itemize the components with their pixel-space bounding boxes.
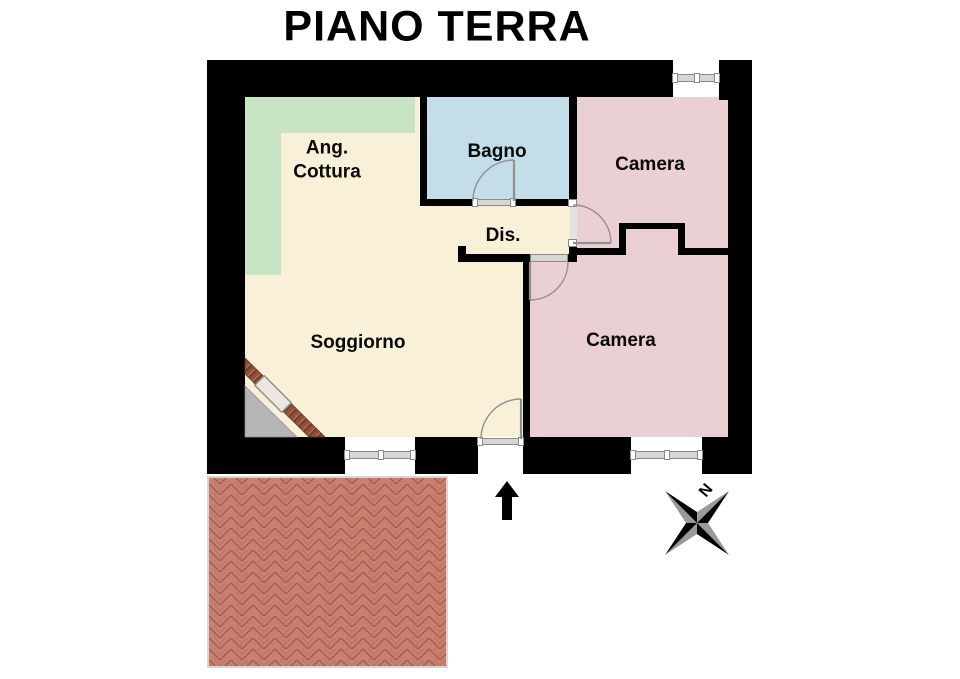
window-jamb bbox=[664, 450, 670, 460]
page-title: PIANO TERRA bbox=[283, 3, 590, 52]
wall-bagno-left bbox=[420, 97, 427, 206]
wall-dis-stub bbox=[458, 246, 466, 254]
compass-north-label: N bbox=[696, 481, 716, 501]
room-label-camera-sud: Camera bbox=[586, 329, 656, 353]
door-jamb bbox=[568, 239, 577, 247]
wall-camera-divider-a bbox=[576, 248, 619, 255]
threshold-entrance-door bbox=[478, 438, 523, 445]
floor-plan-page: PIANO TERRA bbox=[0, 0, 960, 679]
window-jamb bbox=[714, 73, 720, 83]
wall-bottom-c bbox=[523, 437, 631, 474]
door-jamb bbox=[510, 198, 516, 207]
wall-nook-top bbox=[619, 223, 685, 229]
room-label-camera-nord: Camera bbox=[615, 153, 685, 177]
window-soggiorno bbox=[345, 451, 415, 459]
door-jamb bbox=[518, 437, 524, 446]
window-jamb bbox=[697, 450, 703, 460]
wall-top bbox=[207, 60, 673, 97]
wall-dis-south-a bbox=[458, 254, 530, 262]
entrance-arrow-icon bbox=[495, 481, 519, 520]
window-north bbox=[673, 74, 719, 82]
terrace bbox=[208, 477, 447, 667]
wall-bottom-a bbox=[207, 437, 345, 474]
wall-bagno-bottom-a bbox=[420, 199, 473, 206]
wall-dis-south-b bbox=[568, 254, 577, 262]
threshold-camera-sud-door bbox=[530, 254, 568, 262]
window-jamb bbox=[630, 450, 636, 460]
wall-nook-right bbox=[678, 229, 685, 255]
room-label-dis: Dis. bbox=[486, 224, 521, 248]
window-jamb bbox=[694, 73, 700, 83]
door-jamb bbox=[477, 437, 483, 446]
room-label-ang-cottura: Ang. Cottura bbox=[293, 136, 361, 184]
wall-bottom-b bbox=[415, 437, 478, 474]
compass-rose-icon: N bbox=[665, 481, 729, 555]
wall-right bbox=[728, 97, 752, 474]
wall-left bbox=[207, 60, 245, 474]
wall-soggiorno-camera bbox=[523, 254, 530, 437]
wall-top-right-corner bbox=[719, 60, 752, 100]
window-camera-sud bbox=[631, 451, 702, 459]
window-jamb bbox=[344, 450, 350, 460]
room-label-bagno: Bagno bbox=[467, 140, 526, 164]
door-jamb bbox=[568, 199, 577, 207]
window-jamb bbox=[410, 450, 416, 460]
wall-bagno-right bbox=[569, 97, 577, 207]
threshold-bagno-door bbox=[473, 199, 515, 206]
wall-bottom-d bbox=[702, 437, 752, 474]
doorway-camera-nord bbox=[570, 206, 577, 240]
room-camera-sud-nook bbox=[626, 229, 678, 255]
window-jamb bbox=[672, 73, 678, 83]
room-ang-cottura-band-left bbox=[245, 97, 281, 275]
window-jamb bbox=[378, 450, 384, 460]
wall-camera-divider-b bbox=[685, 248, 728, 255]
room-label-soggiorno: Soggiorno bbox=[311, 331, 406, 355]
door-jamb bbox=[472, 198, 478, 207]
